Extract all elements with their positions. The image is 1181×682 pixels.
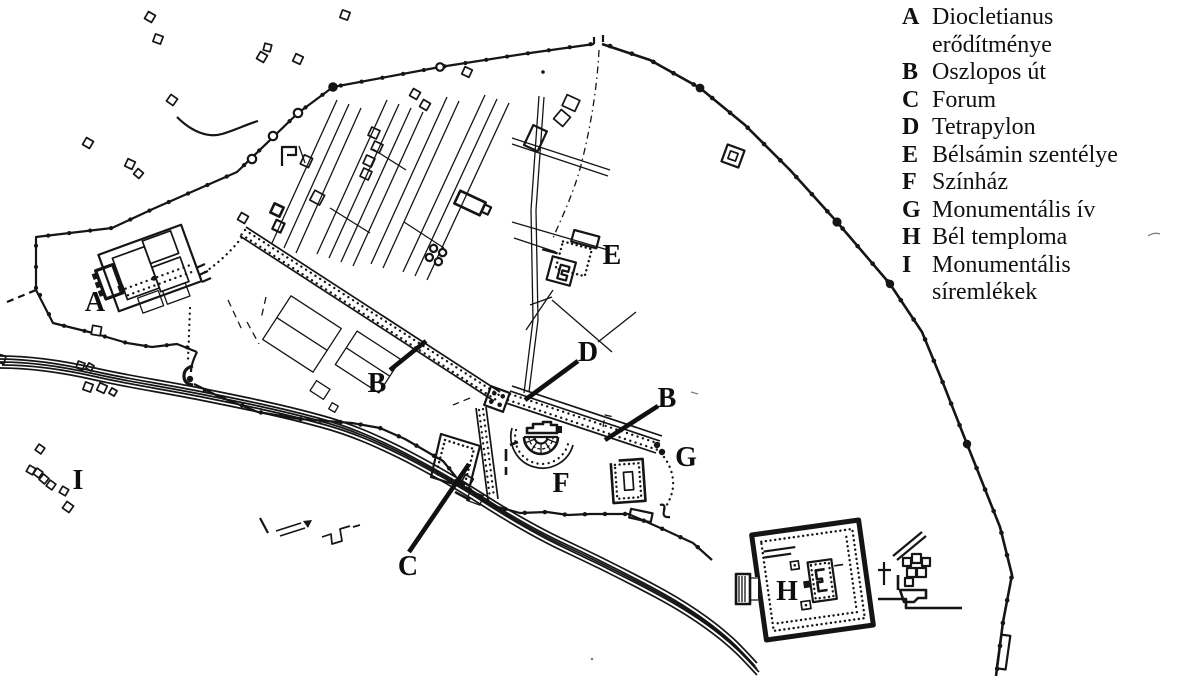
cavea-radials [525,439,557,454]
map-label-b-east: B [658,383,677,414]
legend-item-d: D Tetrapylon [902,114,1181,142]
map-label-b-west: B [368,368,387,399]
compound-east-of-bel [878,532,962,608]
map-label-i: I [73,465,84,496]
leader-d [525,361,578,400]
theatre [524,422,562,454]
camp-of-diocletian [86,225,243,360]
tombs-northwest [83,10,351,179]
legend-label-h: Bél temploma [932,224,1178,252]
legend-item-f: F Színház [902,169,1181,197]
stage-building [527,422,557,433]
legend-label-d: Tetrapylon [932,114,1178,142]
label-leader-lines [390,341,658,552]
wadi-riverbed [0,356,759,675]
old-wall-line [553,50,599,238]
legend-item-c: C Forum [902,87,1181,115]
legend-label-f: Színház [932,169,1178,197]
grid-monuments [425,70,580,266]
palmyra-site-plan: A B C D E F B G H I A Diocletianus erődí… [0,0,1181,682]
map-label-c: C [398,551,418,582]
legend-key-c: C [902,87,932,115]
legend-key-a: A [902,4,932,32]
street-south-of-tetrapylon [476,407,498,500]
wall-tower-square [721,144,744,167]
legend-label-i: Monumentális síremlékek [932,252,1178,307]
legend-label-c: Forum [932,87,1178,115]
legend-key-d: D [902,114,932,142]
legend-key-e: E [902,142,932,170]
legend-item-h: H Bél temploma [902,224,1181,252]
baalshamin-sanctuary [535,223,599,290]
map-label-e: E [603,240,622,271]
city-wall-southwest [36,290,197,352]
city-wall-west-north [7,35,603,302]
legend-label-g: Monumentális ív [932,197,1178,225]
leader-c [409,464,469,552]
legend-label-a: Diocletianus erődítménye [932,4,1178,59]
map-label-a: A [85,287,106,318]
monumental-arch [654,442,673,509]
map-label-d: D [578,337,598,368]
legend-item-i: I Monumentális síremlékek [902,252,1181,307]
legend-label-b: Oszlopos út [932,59,1178,87]
scratch-marks [260,518,360,544]
legend-key-g: G [902,197,932,225]
wall-squiggle [660,505,670,518]
legend-key-h: H [902,224,932,252]
map-label-f: F [552,468,569,499]
legend-item-g: G Monumentális ív [902,197,1181,225]
map-labels: A B C D E F B G H I [73,240,799,607]
legend-item-a: A Diocletianus erődítménye [902,4,1181,59]
church-building [454,191,492,218]
monumental-tombs-group [26,444,73,512]
legend-key-b: B [902,59,932,87]
city-wall-south [184,352,712,560]
temple-of-bel [736,520,873,640]
street-grid-north [272,95,509,280]
legend-key-i: I [902,252,932,280]
entrance-portico [736,574,750,604]
legend-item-e: E Bélsámin szentélye [902,142,1181,170]
legend: A Diocletianus erődítménye B Oszlopos út… [902,4,1181,307]
senate-block [611,459,646,503]
legend-label-e: Bélsámin szentélye [932,142,1178,170]
legend-key-f: F [902,169,932,197]
map-label-h: H [776,576,798,607]
legend-item-b: B Oszlopos út [902,59,1181,87]
map-label-g: G [675,442,697,473]
